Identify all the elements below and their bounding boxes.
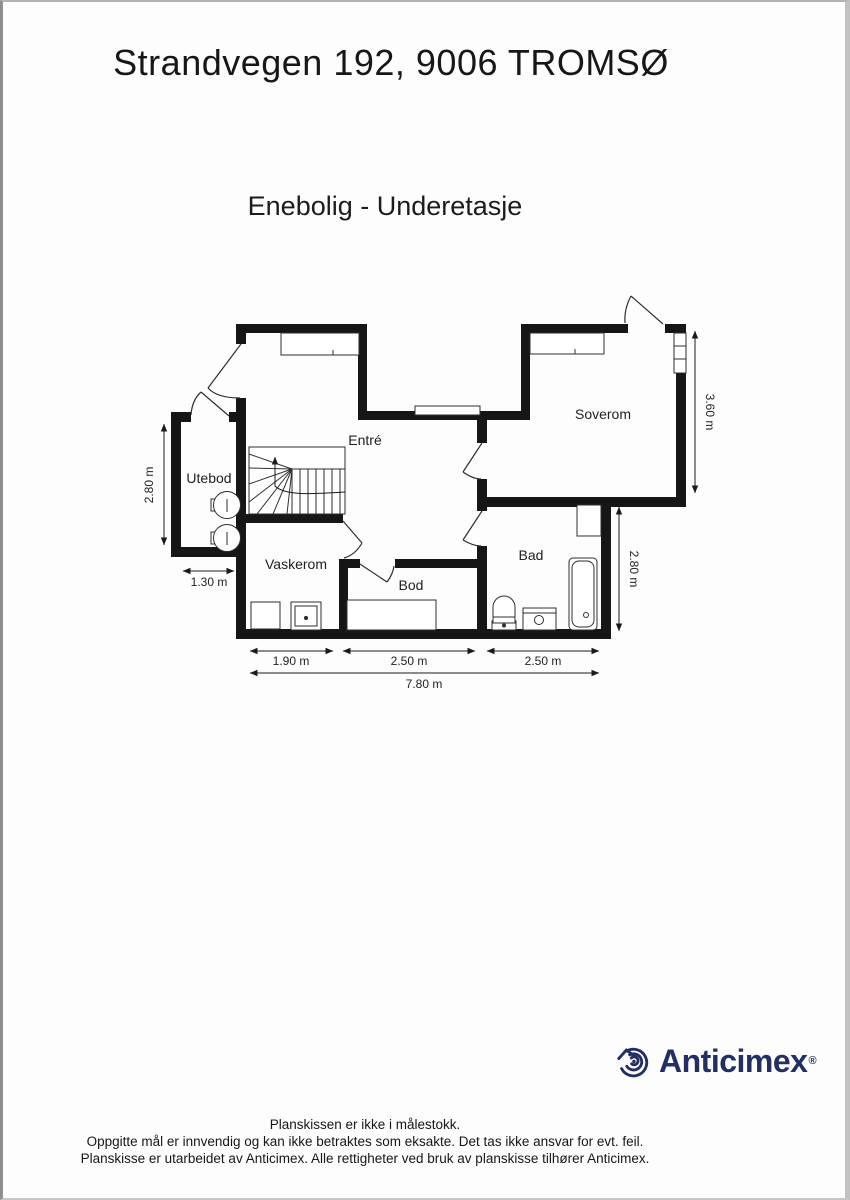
window-soverom (674, 333, 686, 373)
dim-bad-width: 2.50 m (525, 654, 562, 668)
dim-soverom-height: 3.60 m (703, 394, 717, 431)
room-label-vaskerom: Vaskerom (265, 556, 327, 572)
wardrobe-soverom (530, 333, 604, 354)
door-soverom-exterior (625, 296, 663, 324)
bathtub (569, 558, 597, 630)
wardrobe-entre (281, 333, 359, 355)
bad-cabinet (577, 505, 601, 536)
door-utebod (191, 392, 229, 416)
floorplan-page: Strandvegen 192, 9006 TROMSØ Enebolig - … (0, 0, 850, 1200)
dim-utebod-width: 1.30 m (191, 575, 228, 589)
door-soverom (463, 443, 482, 479)
water-heater-1 (211, 492, 241, 519)
window-entrance-recess (415, 406, 480, 415)
footer-line-1: Planskissen er ikke i målestokk. (15, 1116, 715, 1133)
door-bod (360, 564, 394, 582)
dim-bod-width: 2.50 m (391, 654, 428, 668)
dim-vaskerom-width: 1.90 m (273, 654, 310, 668)
dim-utebod-height: 2.80 m (142, 467, 156, 504)
room-label-entre: Entré (348, 432, 382, 448)
room-label-soverom: Soverom (575, 406, 631, 422)
floorplan-drawing: Entré Soverom Utebod Vaskerom Bod Bad 2.… (3, 2, 850, 1200)
staircase (249, 447, 345, 514)
walls (171, 324, 686, 639)
washing-machine (291, 602, 321, 630)
footer-disclaimer: Planskissen er ikke i målestokk. Oppgitt… (15, 1116, 715, 1167)
sink (523, 608, 556, 630)
room-label-bad: Bad (519, 547, 544, 563)
anticimex-logo: Anticimex® (614, 1042, 817, 1080)
anticimex-logo-text: Anticimex (659, 1043, 807, 1080)
door-vaskerom (343, 521, 362, 558)
anticimex-logo-icon (614, 1042, 652, 1080)
vaskerom-counter (251, 602, 280, 629)
footer-line-3: Planskisse er utarbeidet av Anticimex. A… (15, 1150, 715, 1167)
door-main-entrance (208, 344, 241, 398)
toilet (492, 596, 516, 630)
footer-line-2: Oppgitte mål er innvendig og kan ikke be… (15, 1133, 715, 1150)
room-label-utebod: Utebod (186, 470, 231, 486)
dim-bad-height: 2.80 m (627, 551, 641, 588)
door-bad (463, 511, 482, 546)
registered-mark: ® (808, 1055, 816, 1067)
bod-counter (347, 600, 436, 630)
room-label-bod: Bod (399, 577, 424, 593)
dim-total-width: 7.80 m (406, 677, 443, 691)
